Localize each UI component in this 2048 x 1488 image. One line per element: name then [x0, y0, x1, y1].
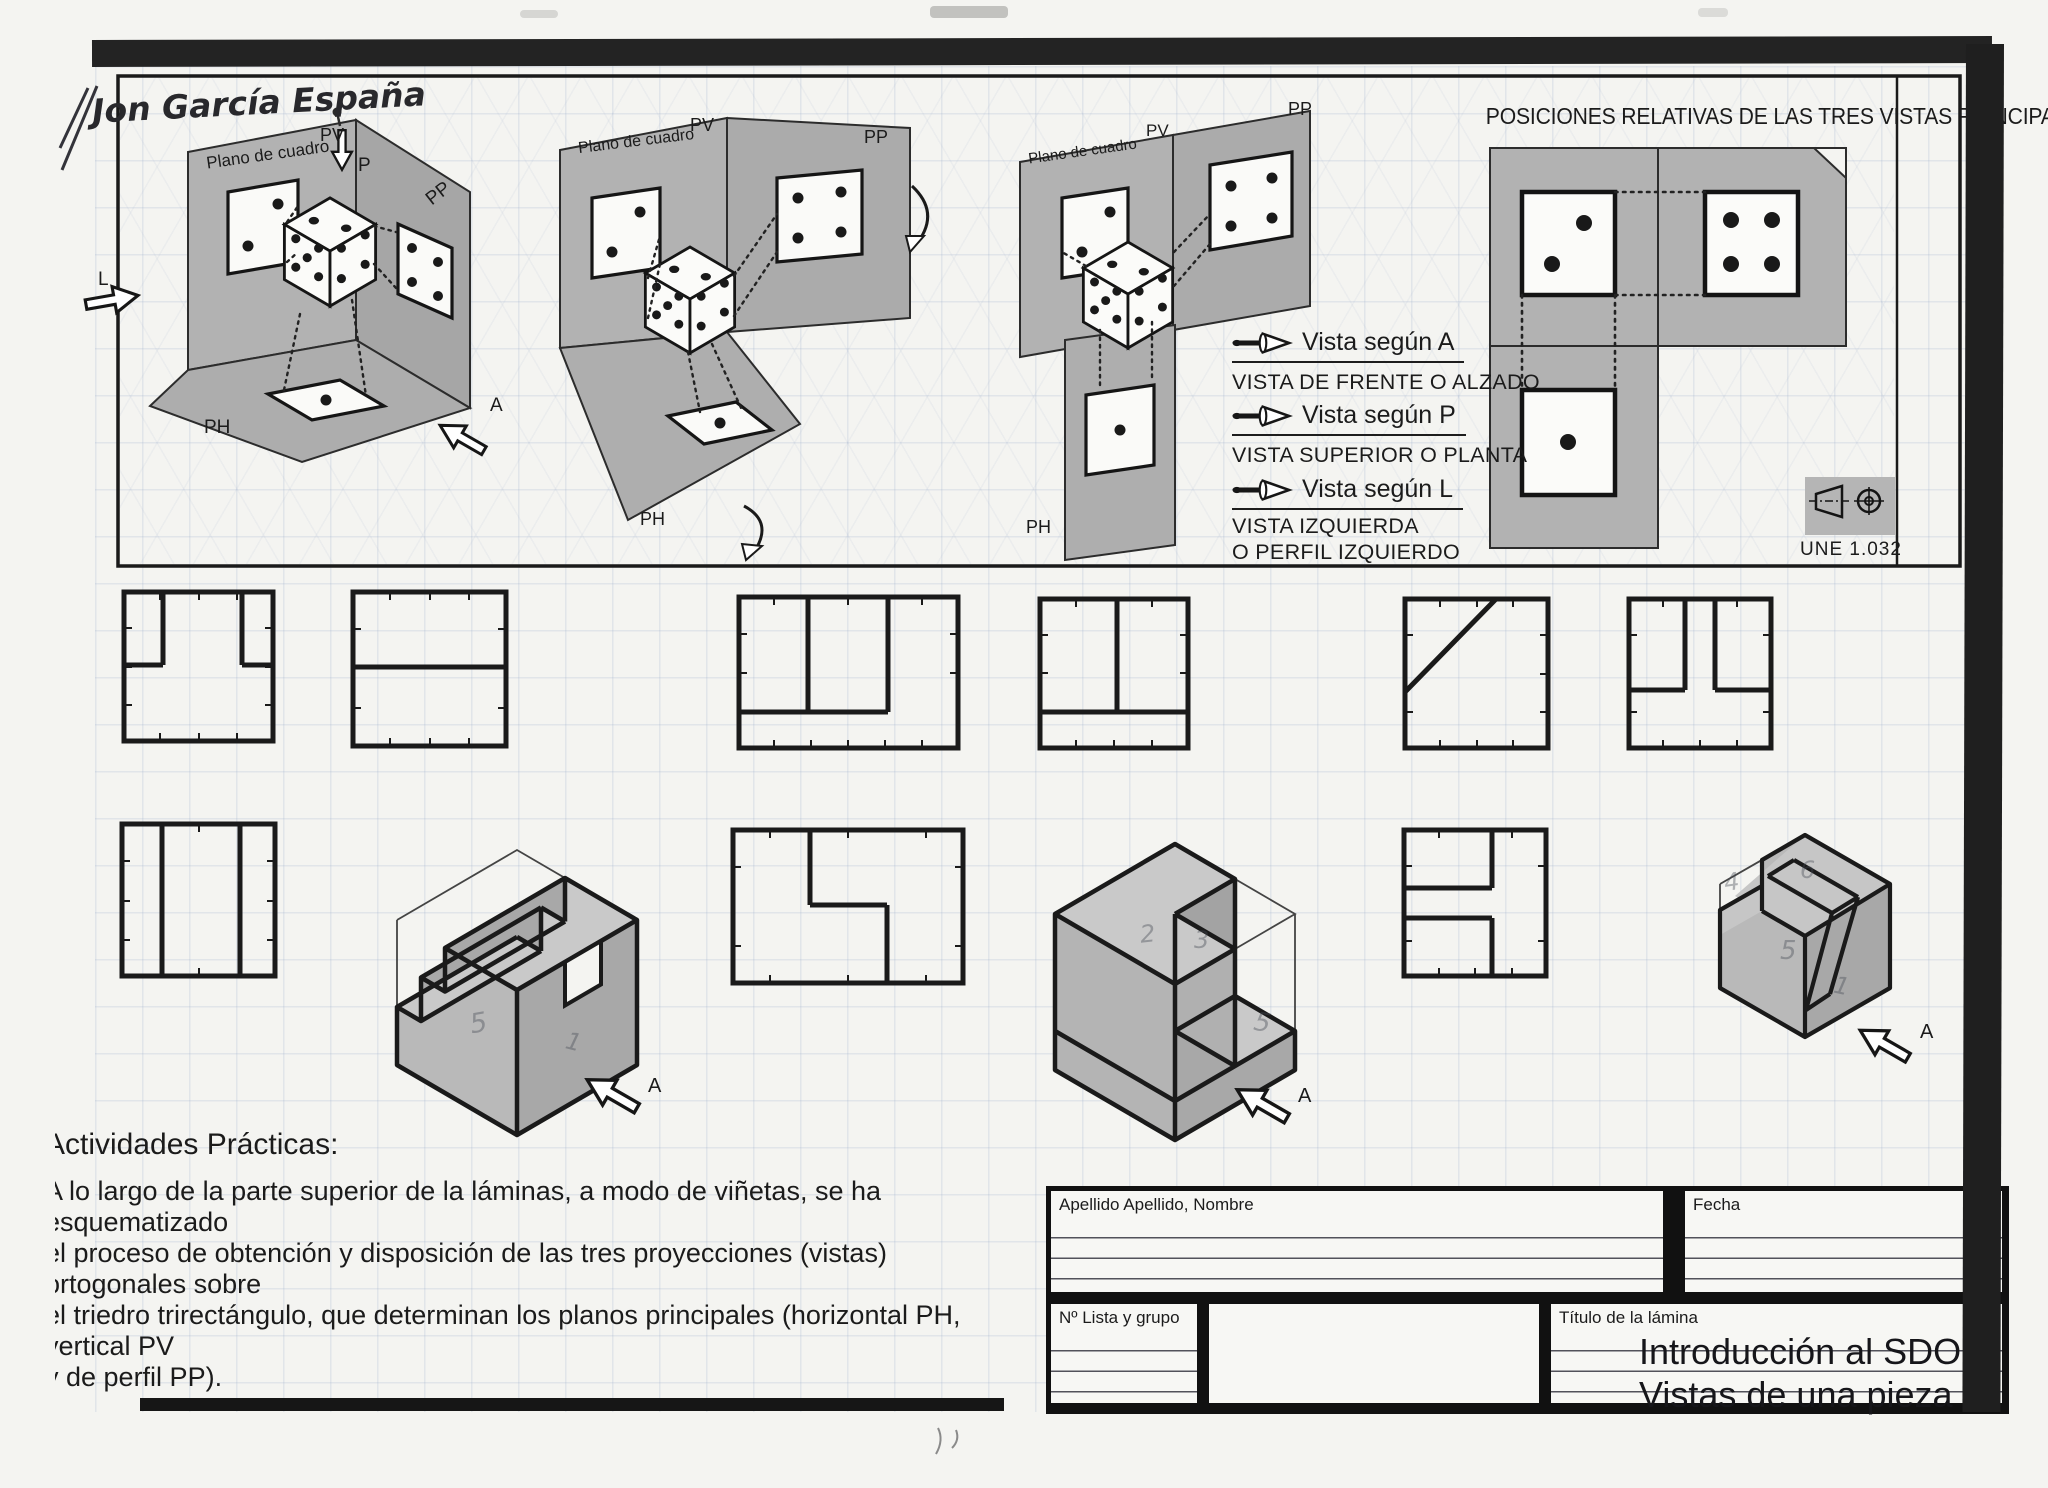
view-shape-5 [1405, 599, 1548, 748]
empty-field [1209, 1304, 1551, 1403]
l-label: L [98, 270, 109, 290]
name-field-label: Apellido Apellido, Nombre [1059, 1195, 1254, 1215]
legend-desc: O PERFIL IZQUIERDO [1232, 540, 1460, 565]
scan-squiggle [936, 1428, 957, 1454]
top-view-face-1dot [1522, 390, 1615, 495]
exercise-views-row-1 [124, 592, 1771, 748]
sheet-title-field: Título de la lámina Introducción al SDO:… [1551, 1304, 2002, 1403]
scan-edge-right [1962, 44, 2004, 1412]
front-view-face-2dots [1522, 192, 1615, 295]
legend-desc: VISTA DE FRENTE O ALZADO [1232, 370, 1540, 395]
projected-face-4dots [1210, 152, 1292, 250]
scan-smudge [930, 6, 1008, 18]
activities-line: A lo largo de la parte superior de la lá… [55, 1176, 1017, 1238]
profile-view-face-4dots [1705, 192, 1798, 295]
scan-edge-top [92, 36, 1992, 67]
arrow-a-icon [1853, 1018, 1914, 1069]
scan-smudge [520, 10, 558, 18]
name-field: Apellido Apellido, Nombre [1051, 1191, 1685, 1292]
legend-item-p: Vista según P [1232, 401, 1466, 436]
une-standard-label: UNE 1.032 [1800, 540, 1902, 560]
legend-arrow-icon [1232, 330, 1294, 356]
pv-label: PV [690, 116, 714, 135]
pp-label: PP [864, 128, 888, 147]
projected-face-1dot [1086, 385, 1154, 475]
view-shape-2 [353, 592, 506, 746]
vignette-2-unfolding [560, 118, 928, 560]
pencil-mark: 2 [1139, 919, 1157, 948]
pencil-mark: 5 [1780, 936, 1797, 966]
legend-label: Vista según A [1302, 328, 1454, 357]
a-label: A [490, 396, 503, 416]
text-block-underline-bar [140, 1398, 1004, 1411]
activities-line: el triedro trirectángulo, que determinan… [55, 1300, 1017, 1362]
exercise-views-row-2 [122, 824, 1546, 983]
sheet-title-line-1: Introducción al SDO: [1639, 1330, 1971, 1373]
activities-text-block: Actividades Prácticas: A lo largo de la … [55, 1128, 1017, 1400]
pp-label: PP [1288, 100, 1312, 119]
p-label: P [358, 156, 371, 176]
sheet-title-line-2: Vistas de una pieza [1639, 1373, 1971, 1416]
sheet-title-text: Introducción al SDO: Vistas de una pieza [1639, 1330, 1971, 1416]
list-number-label: Nº Lista y grupo [1059, 1308, 1180, 1328]
list-number-field: Nº Lista y grupo [1051, 1304, 1209, 1403]
relative-positions-title: POSICIONES RELATIVAS DE LAS TRES VISTAS … [1486, 104, 1894, 128]
scanned-worksheet: Jon García España Plano de cuadro PV P P… [0, 0, 2048, 1488]
title-block-row-2: Nº Lista y grupo Título de la lámina Int… [1051, 1304, 2002, 1403]
date-field: Fecha [1685, 1191, 2002, 1292]
legend-item-a: Vista según A [1232, 328, 1464, 363]
view-shape-e [1404, 830, 1546, 976]
title-block: Apellido Apellido, Nombre Fecha Nº Lista… [1046, 1186, 2009, 1414]
view-shape-4 [1040, 599, 1188, 748]
view-shape-a [122, 824, 275, 976]
pencil-mark: 3 [1194, 926, 1209, 954]
activities-title: Actividades Prácticas: [55, 1128, 1017, 1162]
ph-label: PH [1026, 518, 1051, 537]
projected-face-2dots [592, 188, 660, 278]
pencil-mark: 6 [1800, 856, 1815, 884]
view-shape-3 [739, 597, 958, 748]
legend-label: Vista según P [1302, 401, 1456, 430]
legend-arrow-icon [1232, 403, 1294, 429]
ruled-lines [1051, 1331, 1197, 1403]
ruled-lines [1051, 1218, 1663, 1292]
activities-line: y de perfil PP). [55, 1362, 1017, 1393]
projected-face-4dots [777, 170, 862, 262]
fold-arrow-icon [742, 506, 762, 560]
arrow-a-icon [434, 414, 490, 461]
legend-desc: VISTA SUPERIOR O PLANTA [1232, 443, 1527, 468]
legend-arrow-icon [1232, 477, 1294, 503]
ph-label: PH [640, 510, 665, 529]
activities-line: el proceso de obtención y disposición de… [55, 1238, 1017, 1300]
view-shape-6 [1629, 599, 1771, 748]
legend-desc: VISTA IZQUIERDA [1232, 514, 1419, 539]
title-block-row-1: Apellido Apellido, Nombre Fecha [1051, 1191, 2002, 1304]
pv-label: PV [1146, 122, 1169, 140]
date-field-label: Fecha [1693, 1195, 1740, 1215]
a-label: A [1298, 1086, 1311, 1107]
a-label: A [1920, 1022, 1933, 1043]
arrow-l-icon [84, 282, 141, 317]
legend-item-l: Vista según L [1232, 475, 1463, 510]
relative-positions-diagram [1490, 148, 1895, 548]
scan-smudge [1698, 8, 1728, 17]
view-shape-1 [124, 592, 273, 741]
ruled-lines [1685, 1218, 2002, 1292]
a-label: A [648, 1076, 661, 1097]
ph-label: PH [204, 418, 230, 438]
legend-label: Vista según L [1302, 475, 1453, 504]
pv-label: PV [320, 126, 344, 145]
view-shape-c [733, 830, 963, 983]
first-angle-projection-icon [1805, 477, 1895, 535]
sheet-title-label: Título de la lámina [1559, 1308, 1698, 1328]
